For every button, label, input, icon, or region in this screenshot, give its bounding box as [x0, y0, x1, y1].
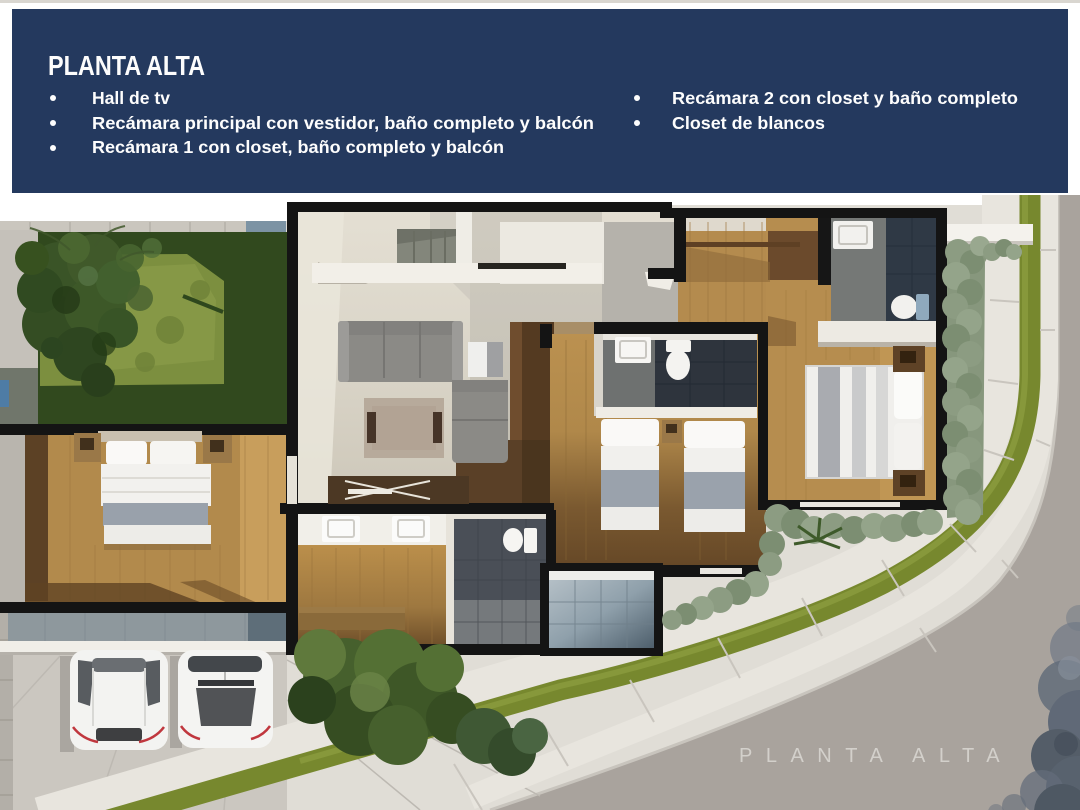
- svg-text:Recámara principal con vestido: Recámara principal con vestidor, baño co…: [92, 113, 594, 133]
- svg-text:Recámara 1 con closet, baño co: Recámara 1 con closet, baño completo y b…: [92, 137, 504, 157]
- svg-text:Hall de tv: Hall de tv: [92, 88, 170, 108]
- svg-text:PLANTA: PLANTA: [739, 745, 896, 767]
- svg-text:Closet de blancos: Closet de blancos: [672, 113, 825, 133]
- svg-text:Recámara 2 con closet y baño c: Recámara 2 con closet y baño completo: [672, 88, 1018, 108]
- svg-text:ALTA: ALTA: [912, 745, 1013, 767]
- svg-text:PLANTA ALTA: PLANTA ALTA: [48, 50, 205, 81]
